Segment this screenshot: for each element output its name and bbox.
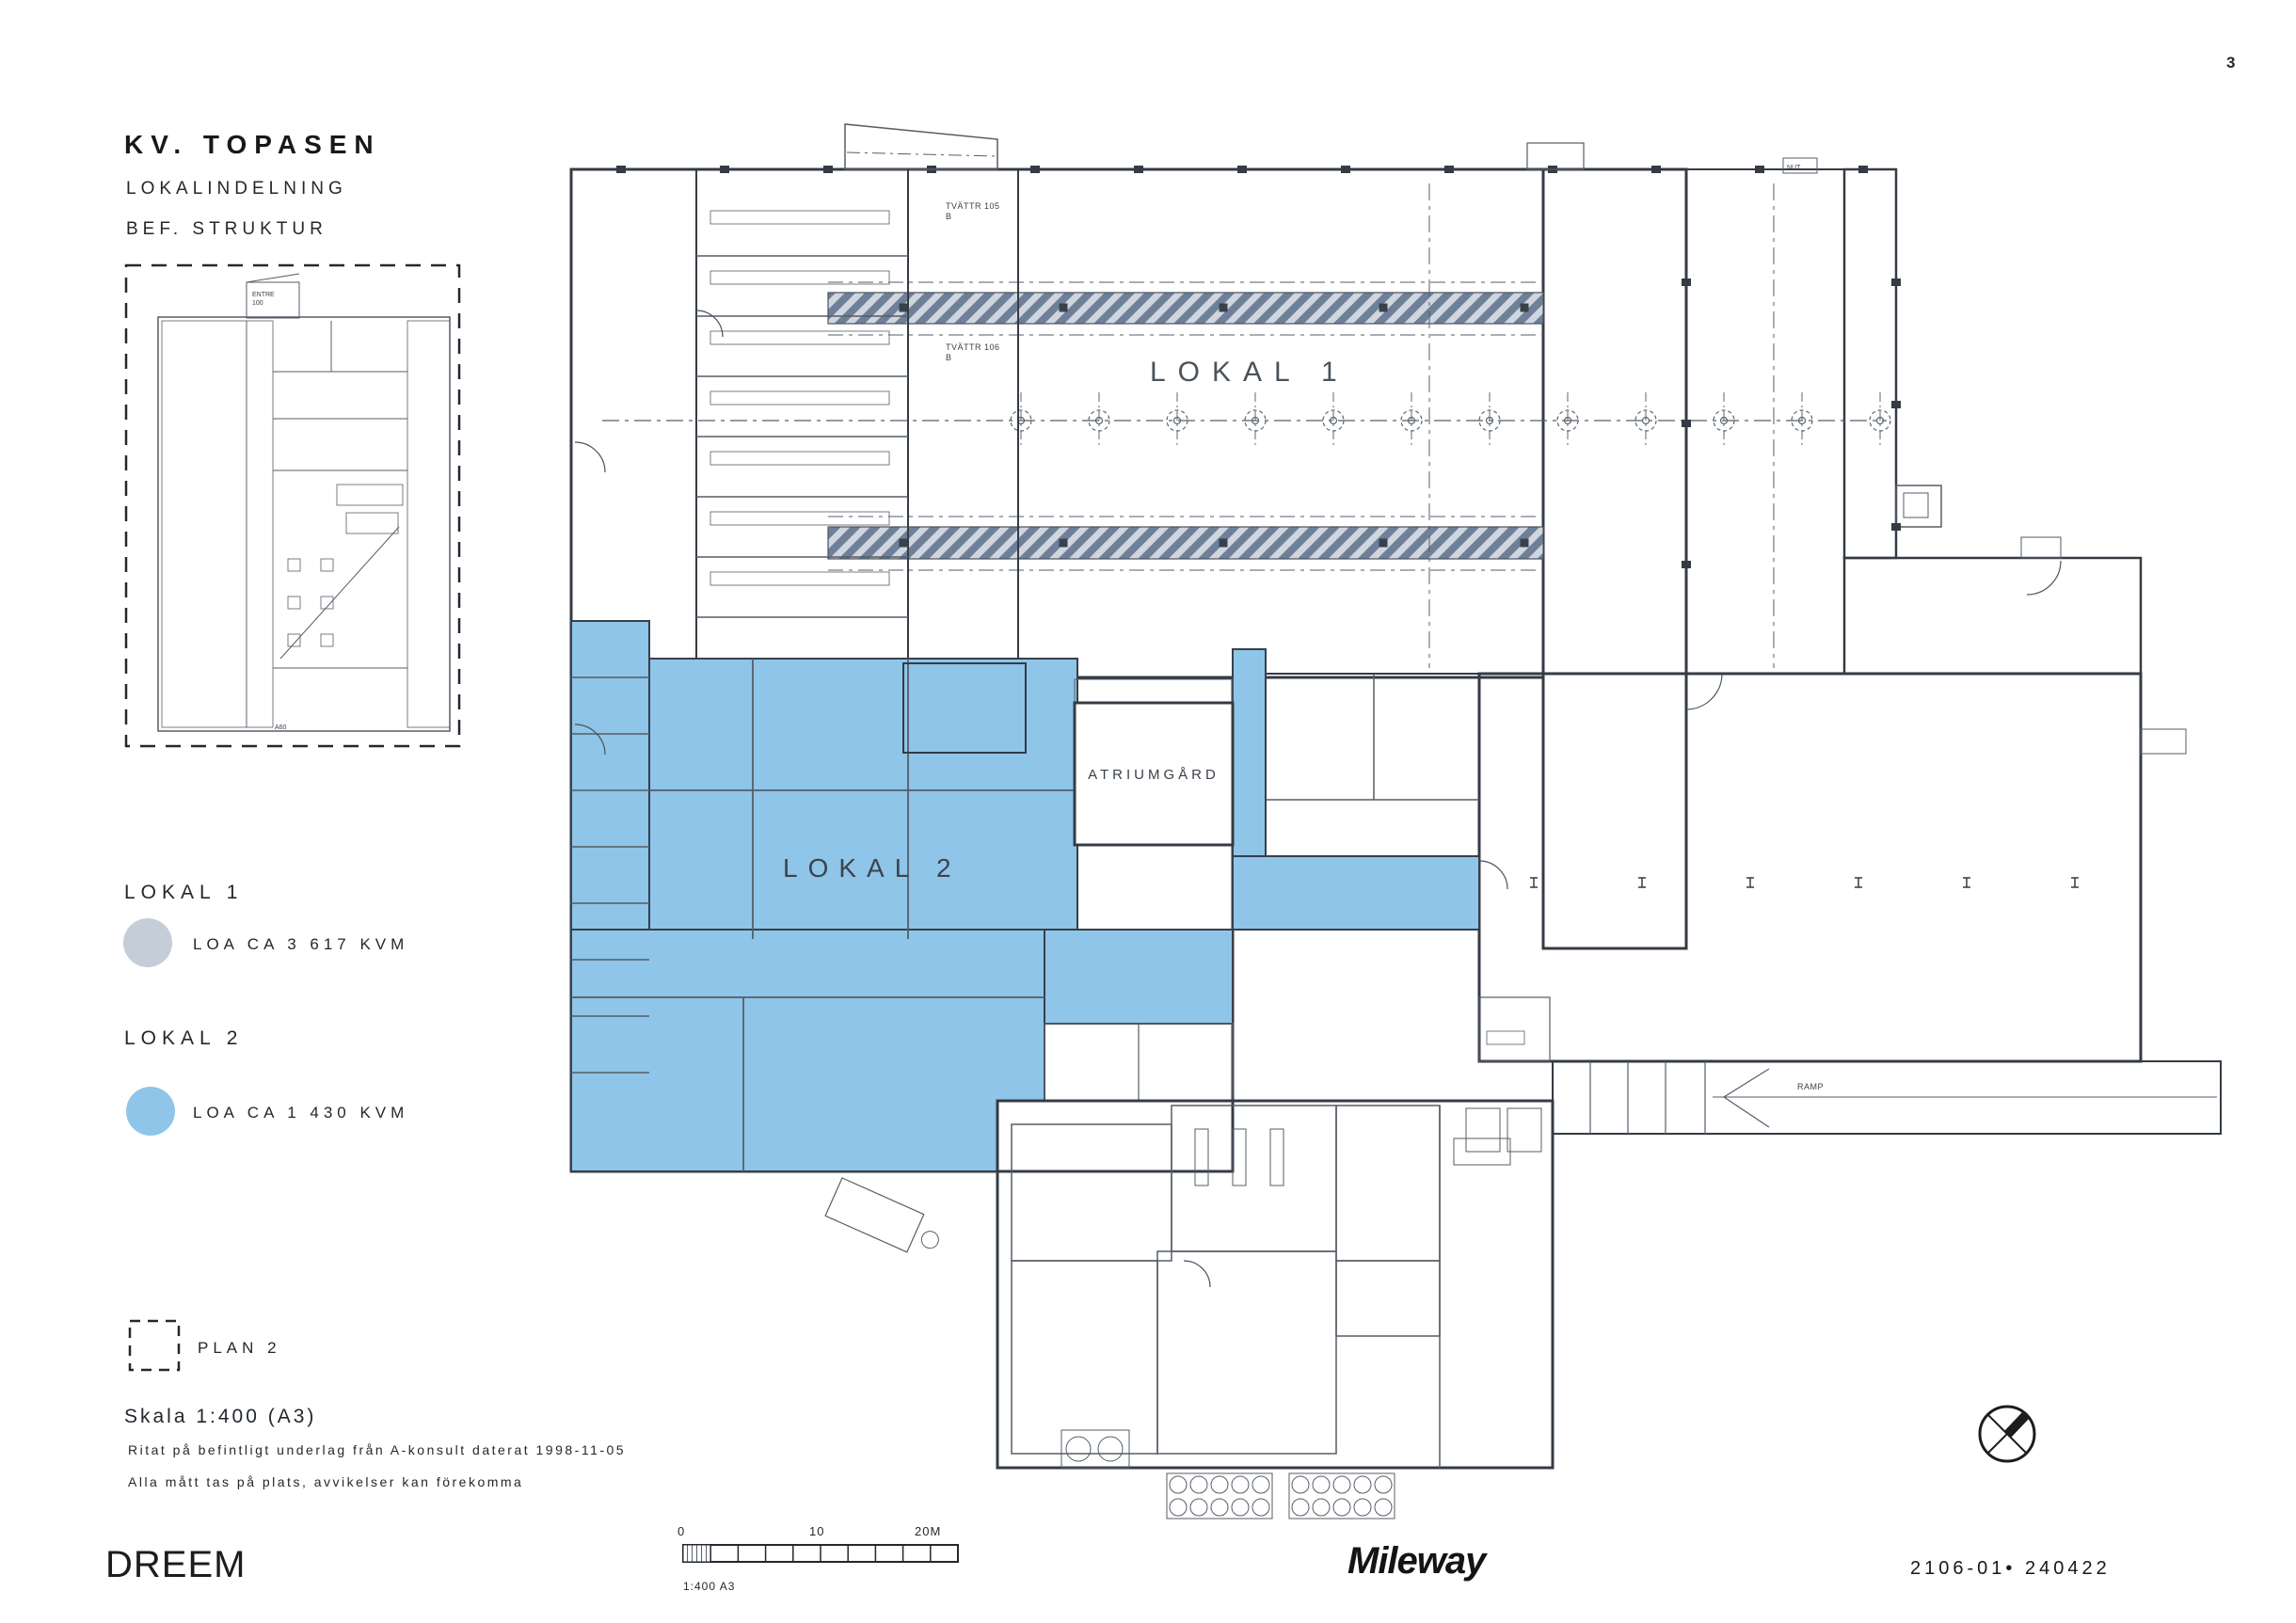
room-label-tvattr2: TVÄTTR 106 — [946, 342, 1000, 352]
main-floor-plan: NUT — [571, 124, 2221, 1519]
nut-label: NUT — [1787, 165, 1801, 171]
legend-lokal2-label: LOKAL 2 — [124, 1027, 243, 1049]
ramp-label: RAMP — [1797, 1082, 1824, 1091]
title-block: KV. TOPASEN LOKALINDELNING BEF. STRUKTUR — [124, 130, 381, 239]
white-rooms-mid — [1266, 674, 1479, 856]
mileway-logo: Mileway — [1347, 1540, 1488, 1582]
legend-lokal2-area: LOA CA 1 430 KVM — [193, 1104, 408, 1122]
atrium-label: ATRIUMGÅRD — [1088, 767, 1220, 783]
legend-lokal1-label: LOKAL 1 — [124, 882, 243, 903]
bike-racks — [1061, 1430, 1395, 1519]
legend: LOKAL 1 LOA CA 3 617 KVM LOKAL 2 LOA CA … — [123, 882, 408, 1370]
scale-note: Skala 1:400 (A3) — [124, 1406, 316, 1427]
legend-plan2-swatch — [130, 1321, 179, 1370]
inset-plan: ENTRE 100 A60 — [126, 265, 459, 746]
svg-text:B: B — [946, 353, 952, 362]
inset-entre-label: ENTRE — [252, 292, 275, 298]
legend-lokal1-swatch — [123, 918, 172, 967]
atrium: ATRIUMGÅRD — [1075, 679, 1233, 845]
doc-reference: 2106-01• 240422 — [1910, 1558, 2111, 1579]
room-label-tvattr1: TVÄTTR 105 — [946, 201, 1000, 211]
sheet-title: KV. TOPASEN — [124, 130, 381, 159]
scalebar-caption: 1:400 A3 — [683, 1580, 735, 1593]
svg-text:100: 100 — [252, 300, 263, 307]
plan-label-lokal2: LOKAL 2 — [783, 853, 962, 883]
entrance-canopy — [845, 124, 1584, 169]
elevator-box — [1896, 485, 1941, 527]
note-line-1: Ritat på befintligt underlag från A-kons… — [128, 1442, 626, 1457]
legend-plan2-label: PLAN 2 — [198, 1339, 281, 1357]
exterior-stair-right — [2141, 729, 2186, 754]
svg-text:B: B — [946, 212, 952, 221]
plan-label-lokal1: LOKAL 1 — [1150, 357, 1349, 388]
scale-bar: 0 10 20M 1:400 A3 — [678, 1524, 958, 1593]
exterior-stair-top — [2021, 537, 2061, 558]
truss-band-2 — [828, 517, 1543, 570]
legend-lokal1-area: LOA CA 3 617 KVM — [193, 935, 408, 953]
lower-wing — [997, 1101, 1553, 1468]
empty-hall — [1479, 485, 2186, 1061]
truss-band-1 — [828, 282, 1543, 335]
dreem-logo: DREEM — [105, 1544, 246, 1585]
note-line-2: Alla mått tas på plats, avvikelser kan f… — [128, 1474, 523, 1489]
sheet-subtitle-2: BEF. STRUKTUR — [126, 219, 327, 239]
loading-dock — [825, 1178, 946, 1262]
scalebar-10: 10 — [809, 1524, 824, 1538]
white-room-top — [1686, 169, 1844, 674]
notes-block: Skala 1:400 (A3) Ritat på befintligt und… — [124, 1406, 626, 1489]
legend-lokal2-swatch — [126, 1087, 175, 1136]
bottom-strip: RAMP — [1466, 1061, 2221, 1152]
north-symbol — [1980, 1407, 2034, 1461]
sheet-subtitle-1: LOKALINDELNING — [126, 179, 347, 199]
scalebar-0: 0 — [678, 1524, 685, 1538]
drawing-sheet: NUT — [0, 0, 2296, 1623]
floor-plan-canvas: NUT — [0, 0, 2296, 1623]
scalebar-20: 20M — [915, 1524, 941, 1538]
hatched-rooms-mid — [1044, 1024, 1233, 1101]
inset-a60-label: A60 — [275, 724, 287, 731]
page-number: 3 — [2226, 54, 2235, 72]
